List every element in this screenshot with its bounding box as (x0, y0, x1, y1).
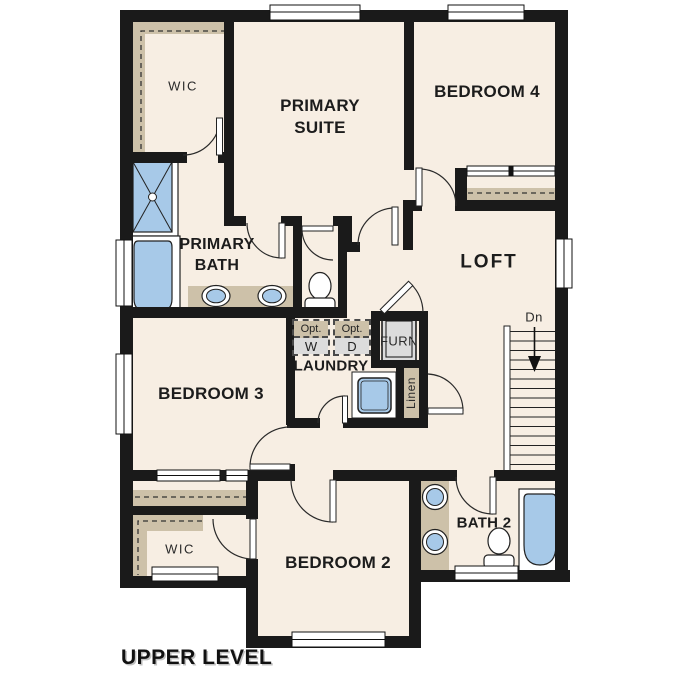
floor-plan: WIC PRIMARY SUITE BEDROOM 4 PRIMARY BATH… (0, 0, 687, 687)
room-label-loft: LOFT (460, 251, 518, 276)
optional-dryer-prefix: Opt. (335, 321, 369, 338)
window (556, 239, 572, 288)
window (448, 5, 524, 20)
room-label-bedroom4: BEDROOM 4 (434, 81, 540, 103)
sliding-closet-door (467, 166, 555, 176)
room-label-furnace: FURN (380, 334, 418, 349)
optional-dryer-letter: D (335, 338, 369, 354)
sliding-closet-door (226, 470, 248, 481)
room-label-wic-upper: WIC (168, 79, 198, 94)
room-label-bedroom3: BEDROOM 3 (158, 383, 264, 405)
window (455, 566, 518, 580)
window (116, 354, 132, 434)
window (270, 5, 360, 20)
window (116, 240, 132, 306)
stair-rail (504, 326, 510, 477)
room-label-wic-lower: WIC (165, 542, 195, 557)
optional-washer-prefix: Opt. (294, 321, 328, 338)
bath2-tub (519, 489, 560, 572)
floor-title: UPPER LEVEL (121, 646, 272, 670)
room-label-primary-suite: PRIMARY SUITE (267, 95, 373, 139)
optional-washer-letter: W (294, 338, 328, 354)
room-label-primary-bath: PRIMARY BATH (169, 235, 265, 277)
shower (128, 158, 178, 236)
room-label-linen: Linen (404, 377, 418, 409)
window (292, 632, 385, 647)
window (152, 567, 218, 581)
laundry-sink (352, 372, 396, 418)
room-label-bedroom2: BEDROOM 2 (285, 552, 391, 574)
optional-washer-box: Opt. W (292, 319, 330, 356)
room-label-bath2: BATH 2 (457, 513, 512, 533)
room-label-laundry: LAUNDRY (294, 356, 369, 376)
stairs-down-label: Dn (525, 310, 543, 325)
sliding-closet-door (157, 470, 220, 481)
optional-dryer-box: Opt. D (333, 319, 371, 356)
